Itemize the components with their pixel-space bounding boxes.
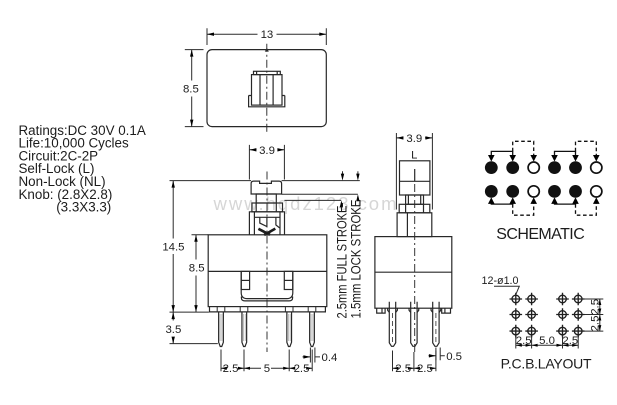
svg-text:2.5mm FULL STROKE: 2.5mm FULL STROKE bbox=[334, 206, 349, 319]
svg-text:13: 13 bbox=[261, 29, 274, 41]
svg-text:14.5: 14.5 bbox=[162, 241, 184, 253]
svg-text:SCHEMATIC: SCHEMATIC bbox=[496, 226, 585, 243]
svg-text:2.5: 2.5 bbox=[395, 363, 411, 375]
svg-text:L: L bbox=[411, 149, 417, 161]
svg-text:2.5: 2.5 bbox=[589, 316, 601, 332]
svg-text:2.5: 2.5 bbox=[589, 299, 601, 315]
svg-text:2.5: 2.5 bbox=[417, 363, 433, 375]
svg-text:5.0: 5.0 bbox=[539, 335, 555, 347]
svg-text:12-ø1.0: 12-ø1.0 bbox=[482, 275, 519, 287]
svg-text:2.5: 2.5 bbox=[562, 335, 578, 347]
svg-text:8.5: 8.5 bbox=[183, 84, 199, 96]
svg-text:3.5: 3.5 bbox=[165, 324, 181, 336]
svg-text:8.5: 8.5 bbox=[189, 263, 205, 275]
svg-text:0.5: 0.5 bbox=[446, 351, 462, 363]
svg-text:3.9: 3.9 bbox=[406, 133, 422, 145]
svg-text:3.9: 3.9 bbox=[259, 145, 275, 157]
svg-text:2.5: 2.5 bbox=[223, 363, 239, 375]
svg-text:P.C.B.LAYOUT: P.C.B.LAYOUT bbox=[501, 356, 592, 372]
svg-text:2.5: 2.5 bbox=[516, 335, 532, 347]
svg-text:2.5: 2.5 bbox=[294, 363, 310, 375]
svg-text:1.5mm LOCK STROKE: 1.5mm LOCK STROKE bbox=[349, 200, 364, 319]
svg-text:0.4: 0.4 bbox=[322, 352, 338, 364]
svg-text:5: 5 bbox=[264, 363, 270, 375]
svg-text:www.hqdz123.com: www.hqdz123.com bbox=[213, 193, 397, 214]
svg-text:(3.3X3.3): (3.3X3.3) bbox=[56, 200, 111, 215]
